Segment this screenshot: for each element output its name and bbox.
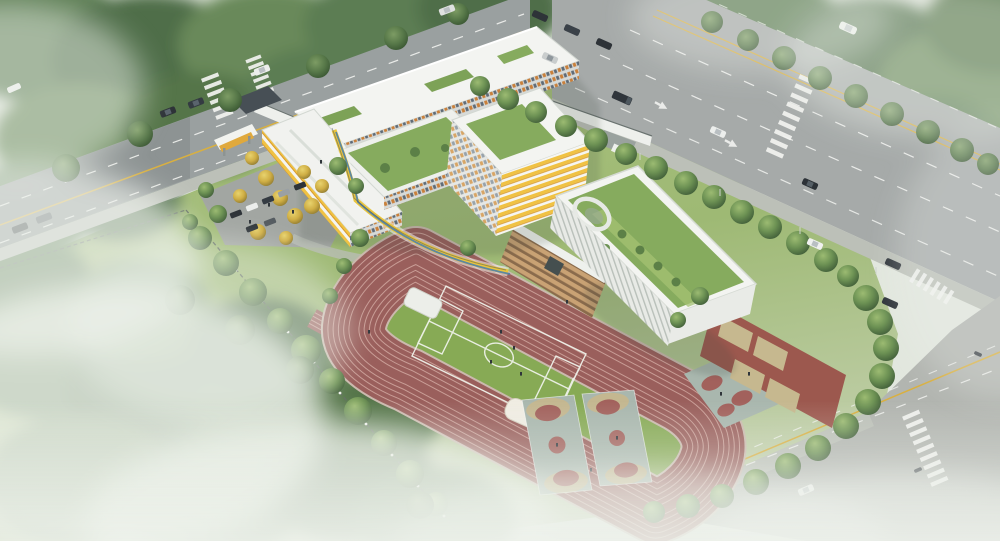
tree [218, 88, 242, 112]
pedestrian [368, 330, 370, 334]
tree [525, 101, 547, 123]
autumn-tree [287, 208, 303, 224]
pedestrian [268, 203, 270, 207]
tree [209, 205, 227, 223]
roof-tree [380, 163, 390, 173]
roof-tree [636, 246, 645, 255]
roof-tree [441, 144, 449, 152]
gate-pillar [248, 136, 251, 144]
haze-fade-bottom [0, 400, 1000, 541]
pedestrian [249, 220, 251, 224]
autumn-tree [304, 198, 320, 214]
pedestrian [720, 392, 722, 396]
gate-pillar [223, 148, 226, 156]
roof-tree [410, 147, 420, 157]
tree [329, 157, 347, 175]
roof-tree [618, 230, 627, 239]
autumn-tree [233, 189, 247, 203]
tree [306, 54, 330, 78]
tree [869, 363, 895, 389]
tree [460, 240, 476, 256]
roof-tree [672, 278, 681, 287]
pedestrian [513, 346, 515, 350]
campus-aerial-rendering [0, 0, 1000, 541]
tree [644, 156, 668, 180]
autumn-tree [245, 151, 259, 165]
pedestrian [500, 330, 502, 334]
autumn-tree [279, 231, 293, 245]
tree [702, 185, 726, 209]
pedestrian [320, 160, 322, 164]
tree [814, 248, 838, 272]
tree [351, 229, 369, 247]
pedestrian [490, 360, 492, 364]
tree [336, 258, 352, 274]
tree [691, 287, 709, 305]
autumn-tree [315, 179, 329, 193]
tree [497, 88, 519, 110]
tree [584, 128, 608, 152]
tree [674, 171, 698, 195]
tree [867, 309, 893, 335]
pedestrian [566, 300, 568, 304]
pedestrian [520, 372, 522, 376]
tree [786, 231, 810, 255]
tree [873, 335, 899, 361]
autumn-tree [258, 170, 274, 186]
tree [615, 143, 637, 165]
tree [670, 312, 686, 328]
tree [348, 178, 364, 194]
tree [758, 215, 782, 239]
tree [730, 200, 754, 224]
tree [470, 76, 490, 96]
tree [555, 115, 577, 137]
pedestrian [292, 210, 294, 214]
pedestrian [748, 372, 750, 376]
tree [384, 26, 408, 50]
autumn-tree [297, 165, 311, 179]
tree [198, 182, 214, 198]
tree [837, 265, 859, 287]
roof-tree [654, 262, 663, 271]
tree [853, 285, 879, 311]
